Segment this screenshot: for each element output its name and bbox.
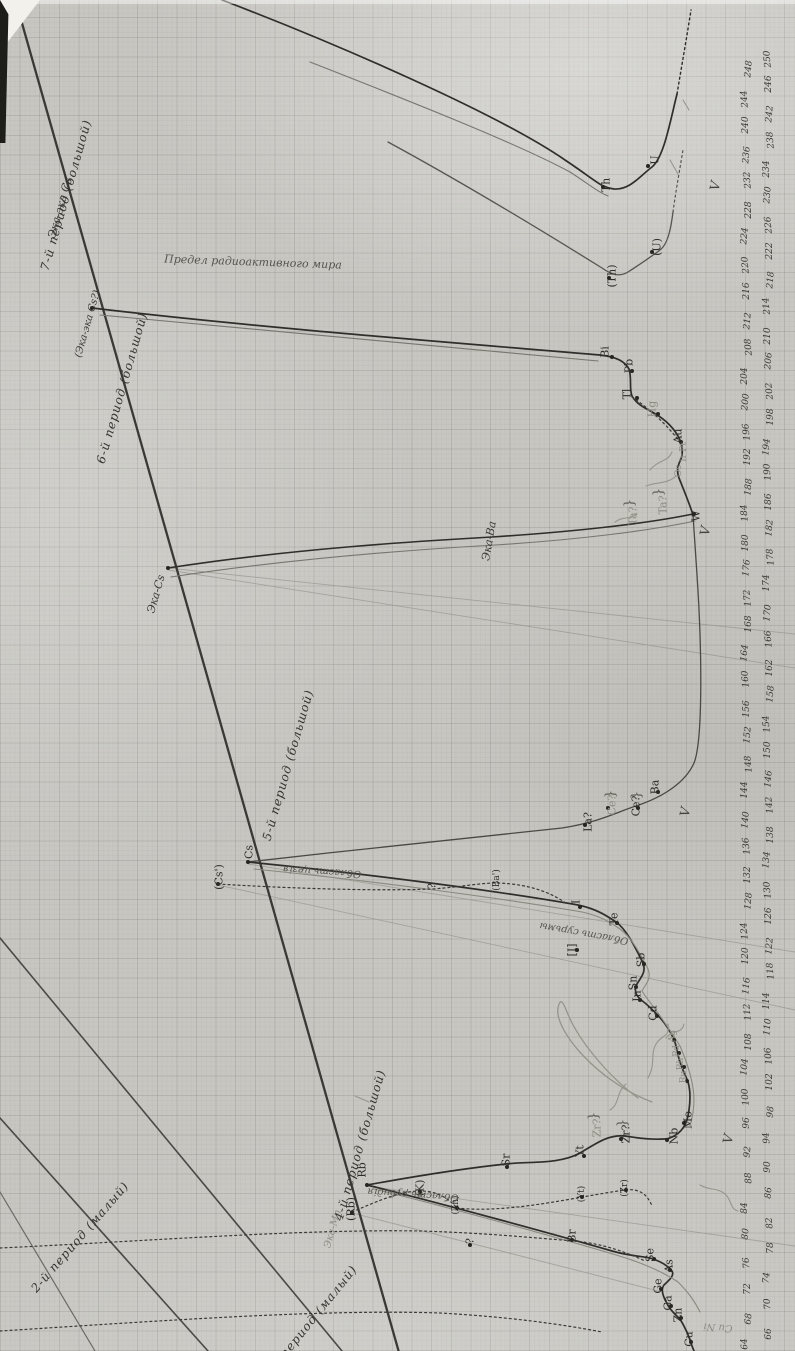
axis-tick-label: 120: [741, 948, 751, 965]
axis-tick-label: 244: [739, 90, 750, 108]
period7-curve: [222, 0, 677, 189]
period4-curve: [367, 1185, 694, 1351]
axis-tick-label: 102: [765, 1074, 775, 1091]
element-label: Ta?: [657, 496, 670, 515]
axis-tick-label: 250: [762, 50, 773, 68]
axis-tick-label: 78: [766, 1243, 776, 1254]
brace-mark: }: [616, 1119, 631, 1127]
axis-tick-label: 118: [765, 962, 776, 980]
element-label: (Ba'): [492, 869, 502, 890]
element-label: Te: [608, 913, 621, 926]
axis-tick-label: 84: [740, 1202, 750, 1213]
element-label: Cs: [243, 845, 256, 859]
element-label: Se: [644, 1248, 657, 1262]
element-label: (Th): [606, 264, 619, 287]
element-label: (Zr): [620, 1179, 630, 1197]
period6-upper-twin: [100, 315, 598, 361]
pencil-spike: [558, 1002, 652, 1102]
axis-tick-label: 126: [764, 907, 774, 924]
axis-tick-label: 96: [742, 1117, 752, 1128]
axis-tick-label: 246: [764, 76, 774, 93]
element-label: Rh: [676, 1058, 686, 1071]
axis-tick-label: 160: [740, 670, 751, 688]
axis-tick-label: 156: [742, 700, 752, 717]
element-label: (Yt): [577, 1186, 587, 1203]
element-label: Ta?: [627, 507, 640, 526]
element-label: Ba: [649, 780, 662, 795]
element-label: (Cs'): [213, 864, 226, 890]
period6-upper-curve: [92, 308, 693, 515]
period7-curve-twin: [310, 62, 608, 196]
brace-mark: }: [587, 1112, 602, 1120]
axis-tick-label: 92: [743, 1146, 754, 1158]
data-point: [635, 396, 639, 400]
axis-tick-label: 196: [741, 423, 752, 441]
element-label: ?: [464, 1238, 477, 1244]
axis-tick-label: 162: [765, 660, 775, 677]
axis-tick-label: 106: [763, 1047, 774, 1065]
axis-tick-label: 76: [742, 1257, 753, 1269]
axis-tick-label: 216: [742, 283, 752, 300]
axis-tick-label: 146: [763, 770, 774, 788]
axis-tick-label: 152: [742, 726, 753, 744]
axis-tick-label: 182: [764, 519, 775, 537]
axis-tick-label: 116: [741, 977, 752, 995]
axis-tick-label: 132: [743, 867, 753, 884]
axis-tick-label: 200: [740, 393, 751, 411]
axis-tick-label: 98: [766, 1106, 777, 1118]
element-label: Yt: [574, 1145, 587, 1157]
element-label: In: [631, 990, 644, 1001]
axis-tick-label: 74: [762, 1272, 773, 1284]
period7-shadow-dotted: [673, 150, 683, 212]
axis-tick-label: 166: [763, 630, 774, 648]
element-label: Ag: [668, 1030, 678, 1042]
axis-tick-label: 240: [741, 116, 751, 133]
axis-tick-label: 122: [764, 937, 775, 955]
brace-mark: }: [623, 499, 638, 507]
element-label: Ru: [679, 1071, 689, 1084]
axis-tick-label: 158: [765, 685, 776, 703]
element-label: ?: [426, 883, 439, 889]
axis-tick-label: 174: [762, 575, 772, 592]
axis-tick-label: 210: [763, 327, 773, 344]
element-label: Zr?: [591, 1119, 604, 1138]
axis-tick-label: 100: [740, 1088, 751, 1106]
axis-tick-label: 186: [764, 493, 774, 510]
element-label: As: [663, 1259, 676, 1273]
axis-tick-label: 226: [763, 216, 774, 234]
alkali-metal-line: [14, 0, 400, 1351]
element-label: Sr: [500, 1154, 513, 1167]
axis-tick-label: 234: [762, 161, 772, 178]
axis-tick-label: 238: [765, 131, 776, 149]
element-label: Hg: [646, 401, 659, 418]
element-label: Tl: [621, 389, 634, 400]
axis-tick-label: 242: [764, 105, 775, 123]
axis-tick-label: 184: [739, 504, 750, 522]
axis-tick-label: 134: [761, 851, 772, 869]
axis-tick-label: 154: [761, 715, 772, 733]
axis-tick-label: 148: [743, 755, 754, 773]
axis-tick-label: 86: [764, 1187, 775, 1199]
brace-mark: }: [630, 791, 645, 799]
data-point: [166, 566, 170, 570]
axis-tick-label: 140: [740, 811, 751, 829]
axis-tick-label: 202: [764, 382, 775, 400]
axis-tick-label: 64: [740, 1338, 751, 1350]
axis-tick-label: 170: [762, 604, 773, 622]
axis-tick-label: 94: [762, 1131, 773, 1143]
axis-tick-label: 88: [744, 1172, 755, 1184]
axis-tick-label: 180: [741, 534, 751, 551]
period7-shadow-curve: [388, 142, 673, 275]
axis-tick-label: 104: [739, 1058, 750, 1076]
axis-tick-label: 150: [763, 741, 773, 758]
axis-tick-label: 110: [762, 1018, 773, 1036]
axis-tick-label: 198: [766, 408, 776, 425]
axis-tick-label: 222: [765, 242, 775, 259]
axis-tick-label: 68: [744, 1313, 755, 1325]
axis-tick-label: 164: [739, 644, 750, 662]
element-label: (U): [651, 238, 664, 256]
axis-tick-label: 236: [741, 146, 752, 164]
axis-tick-label: 192: [743, 449, 753, 466]
eka-cs-curve-twin: [171, 521, 695, 577]
element-label: [I]: [566, 944, 579, 957]
axis-tick-label: 220: [740, 256, 751, 274]
axis-tick-label: 218: [765, 271, 776, 289]
element-label: Mo: [682, 1111, 695, 1129]
axis-tick-label: 80: [741, 1227, 752, 1239]
element-label: Zr?: [620, 1125, 633, 1144]
period2-line: [0, 1118, 208, 1351]
axis-tick-label: 206: [763, 352, 774, 370]
element-label: Ir: [679, 454, 689, 462]
axis-tick-label: 178: [765, 548, 776, 566]
element-label: Pd: [672, 1045, 682, 1057]
axis-tick-label: 136: [741, 837, 752, 855]
data-point-dots: [90, 164, 696, 1344]
predicted-element-label: Cu Ni: [703, 1320, 733, 1333]
axis-tick-label: 108: [744, 1033, 754, 1050]
element-label: U: [649, 155, 662, 164]
element-label: Cu: [683, 1331, 696, 1347]
element-label: Os: [674, 465, 684, 477]
data-point: [578, 905, 582, 909]
axis-tick-label: 228: [744, 201, 754, 218]
element-label: Sn: [627, 976, 640, 991]
chart-drawing: [0, 0, 795, 1351]
axis-tick-label: 144: [740, 781, 750, 798]
axis-tick-label: 230: [762, 186, 773, 204]
axis-tick-label: 188: [743, 478, 754, 496]
element-label: I: [570, 900, 583, 904]
element-label: Pt: [679, 442, 689, 452]
element-label: Th: [600, 178, 613, 192]
element-label: Nb: [668, 1128, 681, 1145]
top-page-edge: [0, 0, 795, 4]
brace-mark: }: [604, 790, 619, 798]
eka-cs-curve: [168, 514, 693, 568]
element-label: Br: [566, 1229, 579, 1242]
axis-tick-label: 194: [761, 438, 772, 456]
axis-tick-label: 138: [766, 826, 776, 843]
axis-tick-label: 204: [740, 368, 750, 385]
axis-tick-label: 128: [743, 892, 754, 910]
axis-tick-label: 232: [742, 171, 753, 189]
axis-tick-label: 124: [739, 922, 750, 940]
axis-tick-label: 208: [743, 338, 754, 356]
data-point: [246, 860, 250, 864]
element-label: La?: [582, 812, 595, 832]
axis-tick-label: 130: [762, 881, 773, 899]
axis-tick-label: 82: [765, 1217, 776, 1229]
axis-tick-label: 214: [761, 297, 772, 315]
element-label: Ge: [652, 1278, 665, 1293]
axis-tick-label: 172: [742, 589, 753, 607]
element-label: Cd: [647, 1005, 660, 1020]
period7-curve-dotted: [677, 10, 691, 94]
axis-tick-label: 70: [763, 1298, 774, 1310]
axis-tick-label: 114: [762, 992, 772, 1009]
element-label: W: [690, 510, 703, 521]
element-label: Sb: [635, 953, 648, 968]
axis-tick-label: 168: [744, 615, 754, 632]
axis-tick-label: 190: [762, 463, 773, 481]
element-label: Pb: [623, 359, 636, 373]
axis-tick-label: 66: [764, 1328, 774, 1339]
axis-tick-label: 248: [743, 60, 754, 78]
axis-tick-label: 212: [742, 312, 753, 330]
axis-tick-label: 72: [743, 1283, 753, 1294]
axis-tick-label: 142: [764, 796, 775, 814]
manuscript-sheet: UTh(U)(Th)BiPbTlHgAuPtIrOsWTa?Ta?BaLa?Ce…: [0, 0, 795, 1351]
axis-tick-label: 176: [741, 559, 752, 577]
period3-line: [0, 938, 342, 1351]
element-label: Bi: [599, 346, 612, 358]
axis-tick-label: 90: [763, 1162, 773, 1173]
axis-tick-label: 224: [739, 227, 750, 245]
element-label: Zn: [672, 1308, 685, 1323]
axis-tick-label: 112: [742, 1003, 753, 1021]
brace-mark: }: [652, 488, 667, 496]
